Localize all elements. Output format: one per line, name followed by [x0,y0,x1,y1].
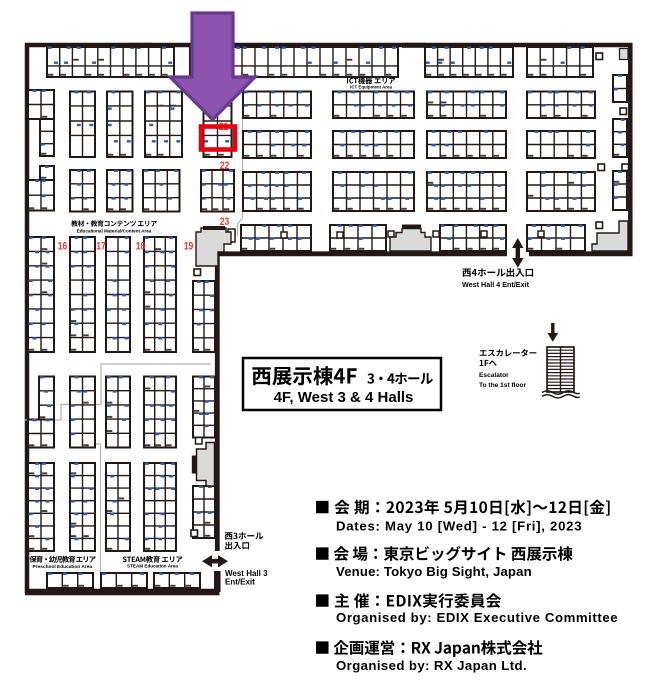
svg-text:Educational Material/Content A: Educational Material/Content Area [77,229,152,234]
svg-text:22: 22 [220,160,230,172]
svg-text:ICT Equipment Area: ICT Equipment Area [350,85,392,90]
svg-text:16: 16 [58,241,68,253]
svg-text:West Hall 4 Ent/Exit: West Hall 4 Ent/Exit [462,280,530,289]
svg-text:Venue: Tokyo Big Sight, Japan: Venue: Tokyo Big Sight, Japan [336,564,532,579]
svg-text:18: 18 [136,241,146,253]
svg-text:Dates: May 10 [Wed] - 12 [Fri]: Dates: May 10 [Wed] - 12 [Fri], 2023 [336,519,582,534]
svg-text:STEAM Education Area: STEAM Education Area [127,564,178,569]
svg-text:19: 19 [184,241,194,253]
svg-text:Organised by: RX Japan Ltd.: Organised by: RX Japan Ltd. [336,658,527,673]
svg-text:23: 23 [220,216,230,228]
svg-text:Ent/Exit: Ent/Exit [225,578,255,587]
svg-text:Preschool Education Area: Preschool Education Area [33,564,93,570]
svg-text:4F, West 3 & 4 Halls: 4F, West 3 & 4 Halls [274,389,414,406]
svg-text:To the 1st floor: To the 1st floor [479,382,527,389]
svg-text:Organised by: EDIX Executive C: Organised by: EDIX Executive Committee [336,610,618,625]
svg-text:Escalator: Escalator [479,372,509,379]
svg-text:17: 17 [96,241,106,253]
